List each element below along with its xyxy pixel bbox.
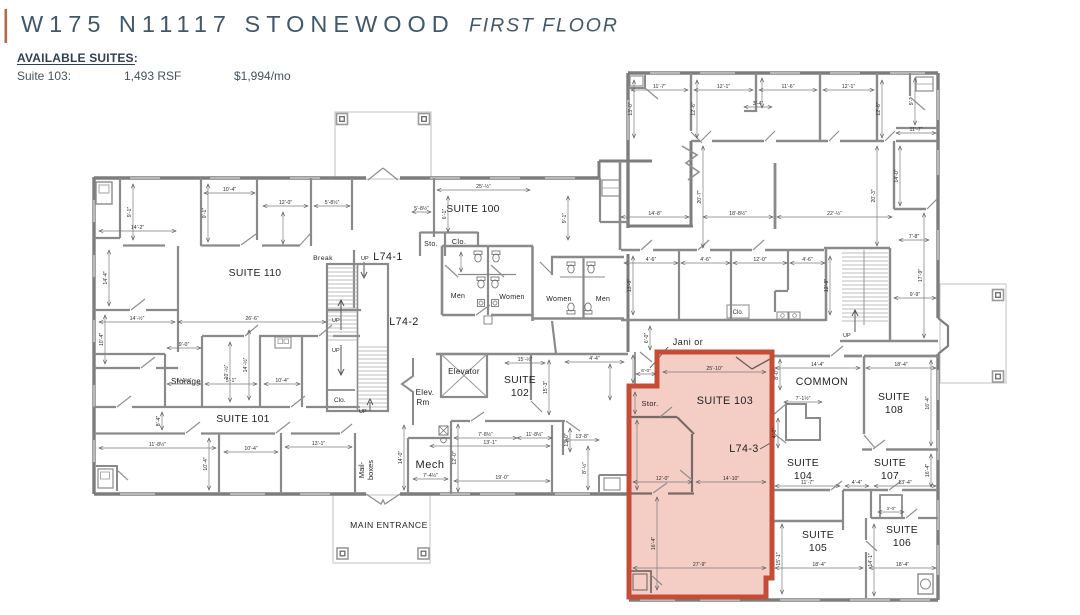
svg-text:SUITE: SUITE [802,530,834,541]
svg-text:3’-0”: 3’-0” [886,506,896,511]
svg-text:14’-0”: 14’-0” [894,169,900,183]
svg-text:Men: Men [451,293,466,300]
svg-text:L74-1: L74-1 [373,251,403,263]
svg-text:SUITE 101: SUITE 101 [216,414,270,425]
svg-text:105: 105 [809,543,827,554]
svg-text:16’-4”: 16’-4” [925,396,931,410]
svg-text:Suite 103:: Suite 103: [17,69,71,83]
svg-text:10’-4”: 10’-4” [275,378,289,384]
svg-text:25’-½”: 25’-½” [476,183,491,190]
svg-text:4’-4”: 4’-4” [589,356,600,362]
svg-text:11’-7”: 11’-7” [801,480,814,486]
svg-text:12’-0”: 12’-0” [753,257,767,263]
svg-text:107: 107 [881,471,899,482]
svg-text:SUITE: SUITE [874,458,906,469]
svg-text:18’-4”: 18’-4” [896,562,910,568]
svg-text:17’-9”: 17’-9” [918,269,924,283]
svg-text:18’-4”: 18’-4” [894,362,908,368]
svg-text:20’-7”: 20’-7” [697,190,703,204]
svg-text:13’-9”: 13’-9” [627,279,633,293]
svg-text:10’-4”: 10’-4” [223,187,237,193]
svg-text:6’-1”: 6’-1” [442,209,448,220]
svg-text:Elevator: Elevator [448,367,480,376]
svg-text:Clo.: Clo. [452,237,467,246]
svg-text:Clo.: Clo. [733,310,744,316]
svg-text:12’-6”: 12’-6” [691,102,697,116]
svg-text:27’-9”: 27’-9” [693,562,707,568]
svg-text:9’-1”: 9’-1” [127,207,133,218]
svg-text:13’-1”: 13’-1” [312,441,326,447]
svg-text:5’-8½”: 5’-8½” [414,205,429,212]
svg-text:13’-1”: 13’-1” [483,440,497,446]
svg-text:10’-½”: 10’-½” [223,364,230,379]
svg-text:Mail-: Mail- [357,461,366,478]
svg-text:Stor.: Stor. [642,399,659,408]
svg-text:FIRST FLOOR: FIRST FLOOR [469,15,619,37]
svg-text:UP: UP [332,318,340,324]
svg-text:9’-1”: 9’-1” [562,213,568,224]
svg-text:Rm: Rm [416,398,429,407]
svg-text:10’-4”: 10’-4” [203,457,209,471]
svg-text:7’-1½”: 7’-1½” [796,395,811,402]
svg-text:SUITE 103: SUITE 103 [697,395,753,407]
svg-text:7’-8½”: 7’-8½” [478,431,493,438]
svg-text:Sto.: Sto. [424,241,438,248]
svg-text:boxes: boxes [366,460,375,480]
svg-text:10’-4”: 10’-4” [99,333,105,347]
svg-text:7’-8”: 7’-8” [909,234,920,240]
svg-text:6’-0”: 6’-0” [641,368,651,374]
svg-text:AVAILABLE SUITES:: AVAILABLE SUITES: [17,51,138,65]
svg-text:16’-4”: 16’-4” [925,464,931,478]
svg-text:14’-8”: 14’-8” [648,211,662,217]
svg-text:Elev.: Elev. [416,388,435,397]
svg-text:Mech: Mech [416,459,445,471]
svg-text:7’-4½”: 7’-4½” [423,472,438,479]
svg-text:16’-4”: 16’-4” [651,537,657,551]
svg-text:12’-0”: 12’-0” [279,200,293,206]
svg-text:UP: UP [361,256,369,262]
svg-text:SUITE 110: SUITE 110 [229,268,282,279]
svg-text:12’-1”: 12’-1” [842,84,856,90]
svg-text:14’-4”: 14’-4” [811,362,825,368]
svg-text:20’-3”: 20’-3” [871,189,877,203]
svg-text:11’-7”: 11’-7” [653,84,666,90]
svg-text:11’-6”: 11’-6” [782,84,795,90]
svg-text:13’-4”: 13’-4” [898,480,912,486]
svg-text:13’-8”: 13’-8” [575,434,589,440]
svg-text:11’-7”: 11’-7” [910,127,923,133]
svg-text:UP: UP [843,333,851,339]
svg-text:14’-0”: 14’-0” [398,451,404,465]
svg-text:Jani or: Jani or [673,337,704,347]
svg-text:Women: Women [499,294,525,301]
svg-text:11’-8½”: 11’-8½” [526,431,543,438]
svg-text:Women: Women [546,296,572,303]
svg-text:15’-3”: 15’-3” [543,381,549,395]
svg-text:COMMON: COMMON [796,376,848,388]
svg-text:W175 N11117 STONEWOOD: W175 N11117 STONEWOOD [21,11,455,37]
svg-text:Break: Break [313,255,333,262]
svg-text:102: 102 [511,388,529,399]
svg-text:$1,994/mo: $1,994/mo [234,69,291,83]
svg-text:9’-1”: 9’-1” [202,208,208,219]
svg-text:4’-6”: 4’-6” [700,257,711,263]
svg-text:8’-4”: 8’-4” [156,416,162,427]
svg-text:1,493 RSF: 1,493 RSF [124,69,181,83]
svg-text:10’-4”: 10’-4” [244,446,258,452]
svg-text:SUITE: SUITE [886,525,918,536]
svg-text:14’-10”: 14’-10” [723,476,739,482]
svg-text:12’-9”: 12’-9” [824,279,830,293]
svg-text:SUITE 100: SUITE 100 [446,204,500,215]
svg-text:Clo.: Clo. [334,397,346,404]
svg-text:14’-1”: 14’-1” [868,553,874,567]
svg-text:26’-6”: 26’-6” [245,316,259,322]
svg-text:22’-½”: 22’-½” [827,210,842,217]
svg-text:12’-6”: 12’-6” [876,102,882,116]
svg-text:9’-9”: 9’-9” [910,292,921,298]
svg-text:MAIN ENTRANCE: MAIN ENTRANCE [350,520,428,530]
svg-text:6’-1½”: 6’-1½” [177,377,192,384]
svg-text:12’-1”: 12’-1” [717,84,731,90]
svg-text:13’-0”: 13’-0” [628,102,634,116]
svg-text:Men: Men [596,296,611,303]
svg-text:12’-0”: 12’-0” [656,476,670,482]
svg-text:UP: UP [359,409,367,415]
svg-text:19’-0”: 19’-0” [495,475,509,481]
svg-text:13’-0”: 13’-0” [564,433,570,447]
svg-text:L74-3: L74-3 [729,443,759,455]
svg-text:9’-0”: 9’-0” [179,342,190,348]
svg-text:L74-2: L74-2 [389,316,419,328]
svg-text:6’-0”: 6’-0” [644,333,650,344]
svg-text:14’-4”: 14’-4” [103,271,109,285]
svg-text:14’-½”: 14’-½” [130,315,145,322]
svg-text:25’-10”: 25’-10” [706,366,722,372]
svg-text:14’-½”: 14’-½” [242,357,249,372]
svg-text:4’-6”: 4’-6” [646,257,657,263]
svg-text:SUITE: SUITE [787,458,819,469]
svg-text:4’-4”: 4’-4” [852,480,863,486]
svg-text:5’-8½”: 5’-8½” [325,199,340,206]
svg-text:11’-8½”: 11’-8½” [149,441,166,448]
svg-text:8’-½”: 8’-½” [581,462,588,474]
svg-text:12’-0”: 12’-0” [452,451,458,465]
svg-text:15’-1”: 15’-1” [776,552,782,566]
svg-text:4’-0”: 4’-0” [772,428,778,439]
svg-text:SUITE: SUITE [504,375,536,386]
svg-text:18’-8½”: 18’-8½” [729,210,747,217]
svg-text:8’-0”: 8’-0” [774,369,780,380]
svg-text:108: 108 [885,405,903,416]
svg-text:SUITE: SUITE [878,392,910,403]
svg-text:18’-4”: 18’-4” [812,562,826,568]
svg-text:106: 106 [893,538,911,549]
svg-text:UP: UP [332,348,340,354]
svg-text:9’-”: 9’-” [909,97,915,105]
svg-text:15’-½”: 15’-½” [518,356,533,363]
svg-text:4’-6”: 4’-6” [802,257,813,263]
